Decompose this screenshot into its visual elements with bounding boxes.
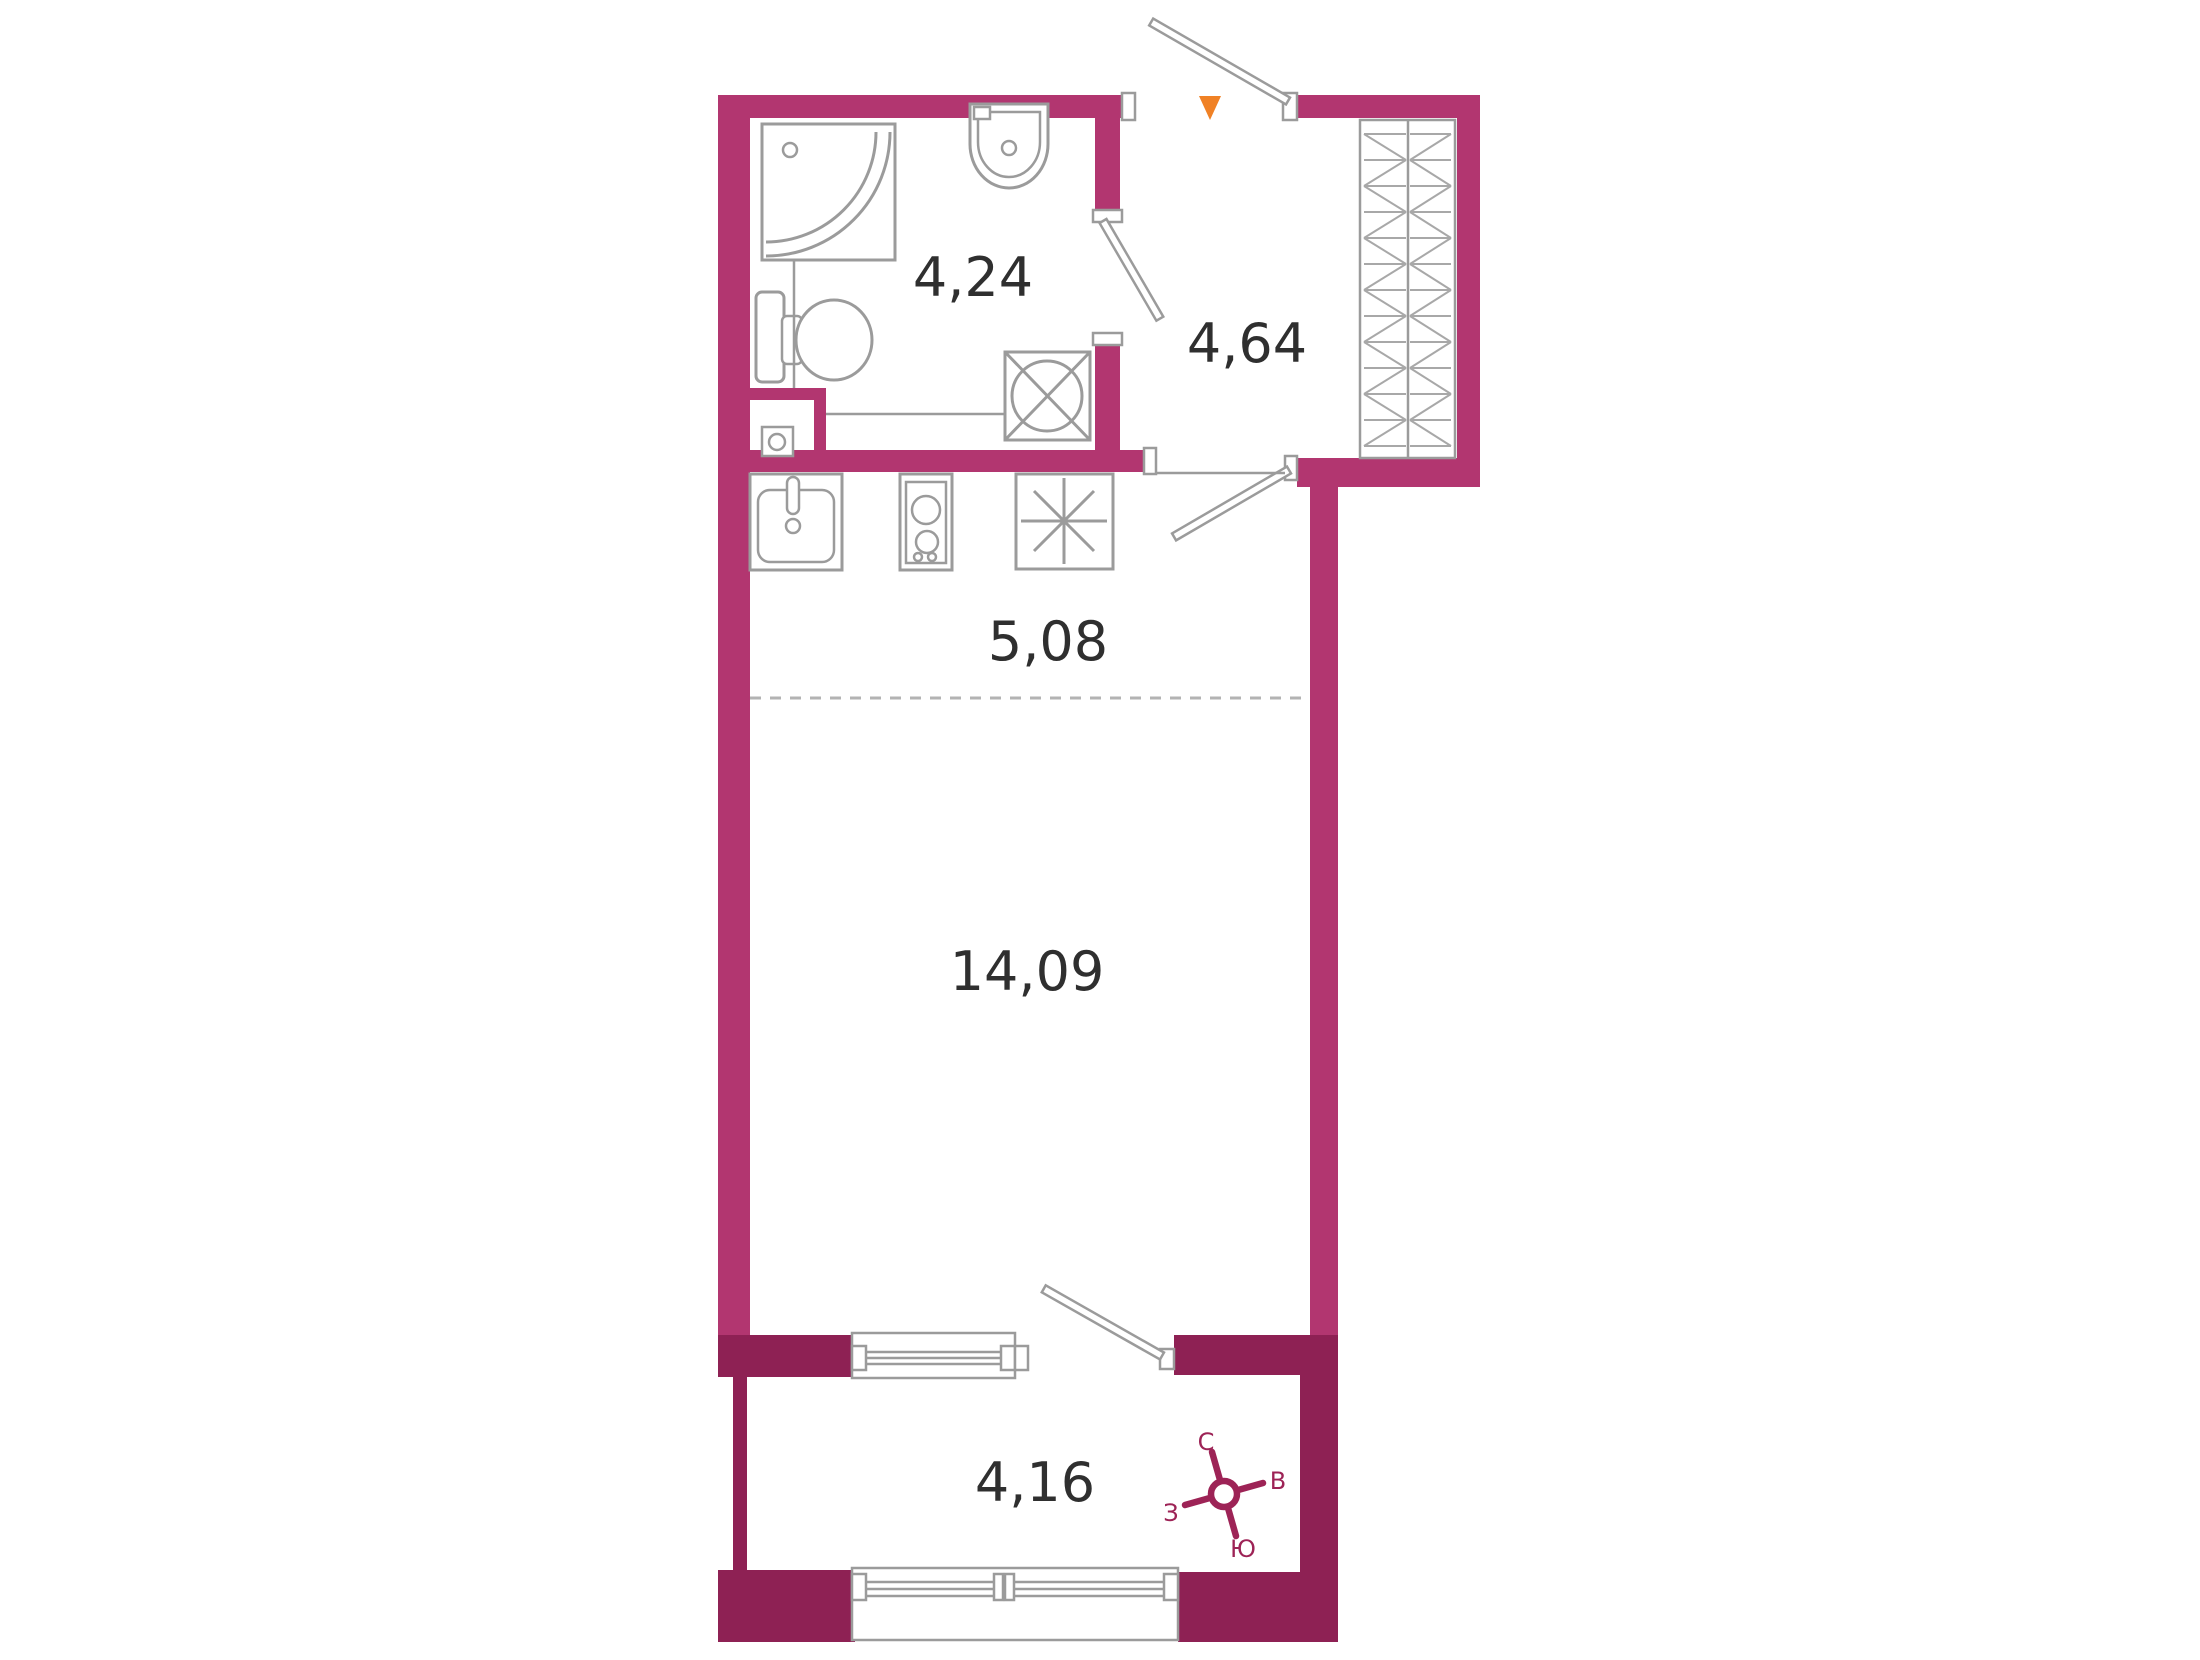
room-balcony-window bbox=[852, 1333, 1015, 1378]
wall-room-right bbox=[1310, 487, 1338, 1335]
utility-shaft-icon bbox=[762, 427, 793, 456]
wall-niche-right bbox=[814, 388, 826, 450]
wall-hallway-bottom bbox=[1297, 458, 1480, 487]
wall-bathroom-partition-upper bbox=[1095, 118, 1120, 210]
toilet-icon bbox=[756, 292, 872, 382]
jamb-balcony-left bbox=[1015, 1346, 1028, 1370]
refrigerator-icon bbox=[1016, 474, 1113, 569]
jamb-entrance-left bbox=[1122, 93, 1135, 120]
kitchen-door-leaf bbox=[1172, 467, 1291, 541]
washing-machine-icon bbox=[1005, 352, 1090, 440]
balcony-glazing-window bbox=[852, 1568, 1178, 1640]
wall-balcony-block-bottom-right bbox=[1178, 1572, 1338, 1642]
wall-top-left bbox=[718, 95, 1122, 118]
compass-north-label: С bbox=[1198, 1428, 1215, 1456]
area-label-balcony: 4,16 bbox=[975, 1451, 1095, 1514]
wall-balcony-left bbox=[733, 1377, 747, 1570]
floor-plan-canvas: 4,24 4,64 5,08 14,09 4,16 С В З Ю bbox=[0, 0, 2200, 1660]
compass-south-label: Ю bbox=[1230, 1535, 1256, 1563]
washbasin-icon bbox=[970, 104, 1048, 188]
wardrobe-icon bbox=[1360, 120, 1455, 458]
floor-plan: 4,24 4,64 5,08 14,09 4,16 С В З Ю bbox=[0, 0, 2200, 1660]
stove-icon bbox=[900, 474, 952, 570]
balcony-door-leaf bbox=[1042, 1285, 1164, 1359]
compass-east-label: В bbox=[1270, 1467, 1286, 1495]
entrance-door-leaf bbox=[1149, 19, 1290, 105]
wall-balcony-bar-right bbox=[1174, 1335, 1338, 1375]
area-label-hallway: 4,64 bbox=[1187, 312, 1307, 375]
jamb-bath-bottom bbox=[1093, 333, 1122, 345]
wall-bathroom-partition-lower bbox=[1095, 345, 1120, 450]
bathroom-door-leaf bbox=[1100, 219, 1164, 321]
door-jambs bbox=[1015, 93, 1297, 1370]
wall-balcony-right bbox=[1300, 1375, 1338, 1572]
wall-balcony-bar-left bbox=[718, 1335, 855, 1377]
wall-wardrobe-right bbox=[1457, 95, 1480, 487]
area-label-bathroom: 4,24 bbox=[913, 246, 1033, 309]
kitchen-sink-icon bbox=[750, 474, 842, 570]
wall-top-right bbox=[1297, 95, 1480, 118]
area-label-kitchen: 5,08 bbox=[988, 610, 1108, 673]
jamb-kitchen-left bbox=[1144, 448, 1156, 474]
wall-balcony-block-bottom-left bbox=[718, 1570, 855, 1642]
compass-west-label: З bbox=[1163, 1499, 1178, 1527]
compass-rose: С В З Ю bbox=[1163, 1428, 1286, 1563]
wall-kitchen-top bbox=[750, 450, 1144, 472]
entrance-arrow-icon bbox=[1199, 96, 1221, 120]
area-label-living-room: 14,09 bbox=[950, 940, 1105, 1003]
shower-icon bbox=[762, 124, 895, 260]
wall-left bbox=[718, 95, 750, 1335]
